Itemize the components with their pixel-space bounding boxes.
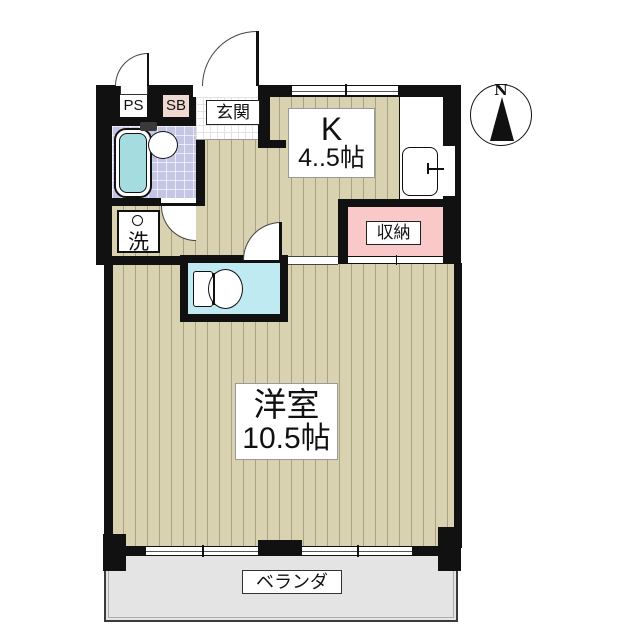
compass-needle-icon: [490, 97, 514, 141]
entrance-label-box: 玄関: [206, 100, 260, 125]
storage-label: 収納: [377, 224, 411, 242]
pillar-bottom-left: [103, 534, 126, 571]
entrance-label: 玄関: [216, 104, 250, 122]
bathroom-door-leaf: [161, 203, 196, 206]
kitchen-label-line2: 4..5帖: [298, 145, 365, 173]
laundry-space: 洗: [117, 210, 160, 253]
entrance-door-opening: [193, 85, 258, 97]
kitchen-window: [292, 85, 398, 96]
laundry-label: 洗: [119, 226, 158, 256]
balcony-window-left: [146, 546, 258, 556]
compass-north-label: N: [471, 81, 531, 99]
western-room-label-box: 洋室 10.5帖: [235, 383, 338, 460]
bath-faucet-icon: [140, 122, 157, 131]
sb-compartment: SB: [163, 95, 189, 117]
bathtub-icon: [114, 128, 152, 198]
veranda-label-box: ベランダ: [242, 570, 342, 594]
room-door-opening: [281, 256, 338, 265]
western-room-label-line2: 10.5帖: [242, 422, 330, 455]
entrance-door-leaf: [256, 31, 259, 86]
toilet-seat-line: [213, 273, 215, 305]
floorplan-canvas: PS SB: [0, 0, 640, 640]
kitchen-faucet-icon: [428, 168, 444, 170]
kitchen-label-box: K 4..5帖: [288, 108, 375, 178]
washer-faucet-icon: [132, 215, 143, 226]
ps-door-leaf: [147, 53, 149, 86]
ps-door-opening: [120, 85, 148, 95]
wall-right-lower: [454, 263, 462, 548]
entrance-wall-stub: [258, 140, 286, 148]
western-room-label-line1: 洋室: [254, 388, 320, 423]
compass-icon: N: [470, 84, 532, 146]
wall-right-notch: [443, 146, 455, 196]
kitchen-faucet-tick: [427, 163, 429, 174]
sb-label: SB: [166, 98, 186, 114]
ps-compartment: PS: [120, 95, 147, 117]
wall-left-lower: [104, 256, 113, 548]
window-center-pier: [258, 540, 302, 556]
kitchen-sink-icon: [402, 147, 438, 196]
veranda-label: ベランダ: [256, 573, 328, 592]
storage-sliding-door: [348, 256, 443, 264]
ps-door-swing-arc: [115, 53, 148, 86]
room-door-leaf: [279, 222, 282, 262]
bath-sink-icon: [148, 131, 178, 159]
entrance-door-swing-arc: [202, 31, 257, 86]
balcony-window-right: [302, 546, 412, 556]
ps-label: PS: [123, 98, 143, 114]
kitchen-label-line1: K: [321, 113, 342, 145]
pillar-bottom-right: [438, 527, 461, 571]
storage-label-box: 収納: [366, 221, 421, 245]
